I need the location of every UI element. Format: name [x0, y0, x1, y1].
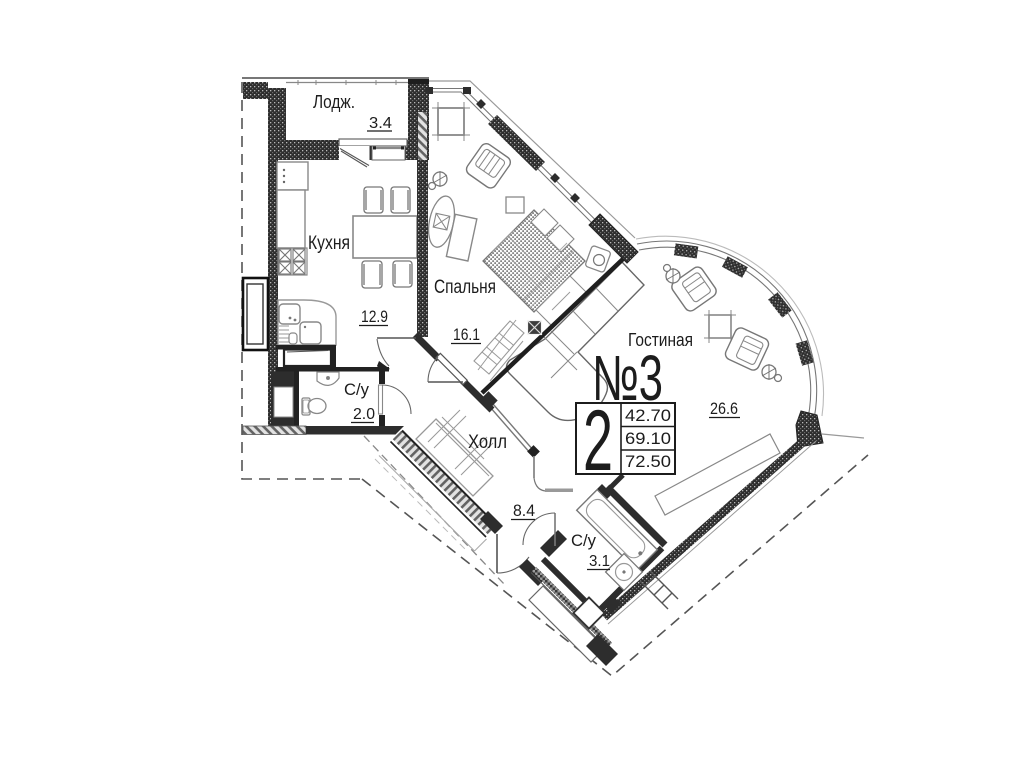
svg-text:С/у: С/у [571, 531, 596, 550]
svg-text:72.50: 72.50 [625, 452, 671, 471]
svg-text:26.6: 26.6 [710, 399, 738, 418]
svg-text:42.70: 42.70 [625, 406, 671, 425]
svg-text:12.9: 12.9 [361, 307, 388, 326]
svg-text:3.1: 3.1 [589, 553, 610, 570]
svg-text:Кухня: Кухня [308, 233, 350, 254]
svg-text:16.1: 16.1 [453, 325, 480, 344]
svg-text:Холл: Холл [468, 432, 507, 453]
svg-text:8.4: 8.4 [513, 501, 535, 520]
svg-text:Лодж.: Лодж. [313, 92, 355, 112]
svg-text:С/у: С/у [344, 380, 369, 399]
svg-text:Спальня: Спальня [434, 277, 496, 298]
svg-text:2.0: 2.0 [353, 406, 375, 423]
svg-text:69.10: 69.10 [625, 429, 671, 448]
svg-text:2: 2 [583, 393, 613, 489]
svg-text:3.4: 3.4 [369, 115, 392, 132]
